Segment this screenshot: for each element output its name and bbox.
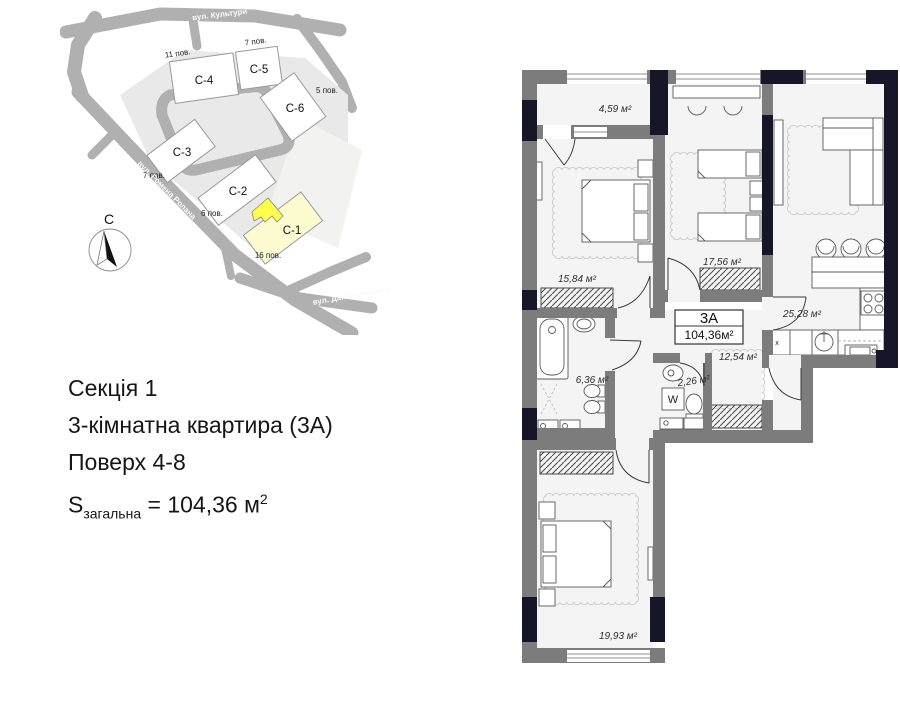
building-c5-floors: 7 пов. — [244, 36, 267, 48]
room-label-bathroom: 6,36 м² — [576, 375, 609, 386]
compass: С — [89, 211, 131, 271]
building-c1-floors: 16 пов. — [255, 251, 281, 260]
page: С-4 11 пов. С-5 7 пов. С-6 5 пов. С-3 7 … — [0, 0, 900, 722]
total-area-line: Sзагальна = 104,36 м2 — [68, 481, 333, 532]
bar-stool-icon — [816, 239, 886, 259]
wardrobe-icon — [541, 288, 613, 308]
nightstand-icon — [539, 589, 555, 606]
window-icon — [676, 70, 760, 84]
room-label-bedroom-2: 19,93 м² — [599, 631, 638, 642]
building-c5-label: С-5 — [250, 64, 269, 76]
building-c2-floors: 6 пов. — [201, 209, 223, 218]
room-label-hallway: 12,54 м² — [719, 352, 758, 363]
radiator-icon — [648, 547, 653, 580]
area-subscript: загальна — [83, 505, 141, 521]
window-icon — [806, 70, 866, 84]
nightstand-icon — [750, 197, 763, 211]
hall-wardrobe-icon — [706, 405, 762, 428]
area-value: = 104,36 м — [141, 492, 260, 518]
building-c6-floors: 5 пов. — [316, 86, 338, 95]
bar-counter-icon — [812, 257, 887, 288]
bidet-icon — [584, 401, 605, 414]
nightstand-icon — [638, 244, 653, 262]
unit-area-label: 104,36м² — [685, 328, 734, 342]
area-symbol: S — [68, 492, 83, 518]
room-label-kitchen-living: 25,28 м² — [782, 309, 822, 320]
site-map: С-4 11 пов. С-5 7 пов. С-6 5 пов. С-3 7 … — [60, 0, 400, 335]
unit-code-label: 3А — [700, 310, 718, 327]
tv-cabinet-icon — [774, 120, 783, 205]
building-c4-label: С-4 — [195, 75, 214, 87]
wardrobe-icon — [540, 452, 613, 474]
floor-plan: 3А 104,36м² 4,59 м² 15,84 м² 17,56 м² 25… — [515, 60, 900, 672]
single-bed-icon — [698, 150, 762, 178]
unit-label-box: 3А 104,36м² — [675, 310, 743, 344]
vent-label: x — [775, 340, 779, 347]
toilet-icon — [584, 385, 605, 398]
stove-icon — [861, 291, 885, 315]
double-bed-icon — [541, 521, 611, 587]
nightstand-icon — [539, 502, 555, 519]
washbasin-icon — [573, 316, 595, 332]
window-icon — [567, 650, 650, 662]
bathtub-icon — [536, 315, 568, 379]
nightstand-icon — [638, 160, 653, 177]
building-c1-label: С-1 — [283, 225, 302, 237]
nightstand-icon — [750, 181, 763, 195]
room-label-bedroom-1: 15,84 м² — [558, 274, 597, 285]
balcony-window-icon — [543, 125, 607, 139]
window-icon — [567, 70, 647, 84]
room-label-balcony: 4,59 м² — [599, 104, 632, 115]
compass-north-label: С — [104, 211, 114, 227]
double-bed-icon — [582, 180, 650, 242]
section-line: Секція 1 — [68, 370, 333, 407]
desk-icon — [673, 86, 760, 98]
washer-label: W — [668, 394, 679, 406]
single-bed-icon — [698, 213, 762, 241]
wardrobe-icon — [700, 268, 760, 290]
room-label-children: 17,56 м² — [703, 257, 742, 268]
apartment-type-line: 3-кімнатна квартира (3А) — [68, 407, 333, 444]
floors-line: Поверх 4-8 — [68, 444, 333, 481]
building-c2-label: С-2 — [229, 186, 248, 198]
area-superscript: 2 — [260, 491, 268, 507]
building-c3-label: С-3 — [173, 147, 192, 159]
building-c6-label: С-6 — [286, 103, 305, 115]
apartment-info: Секція 1 3-кімнатна квартира (3А) Поверх… — [68, 370, 333, 532]
